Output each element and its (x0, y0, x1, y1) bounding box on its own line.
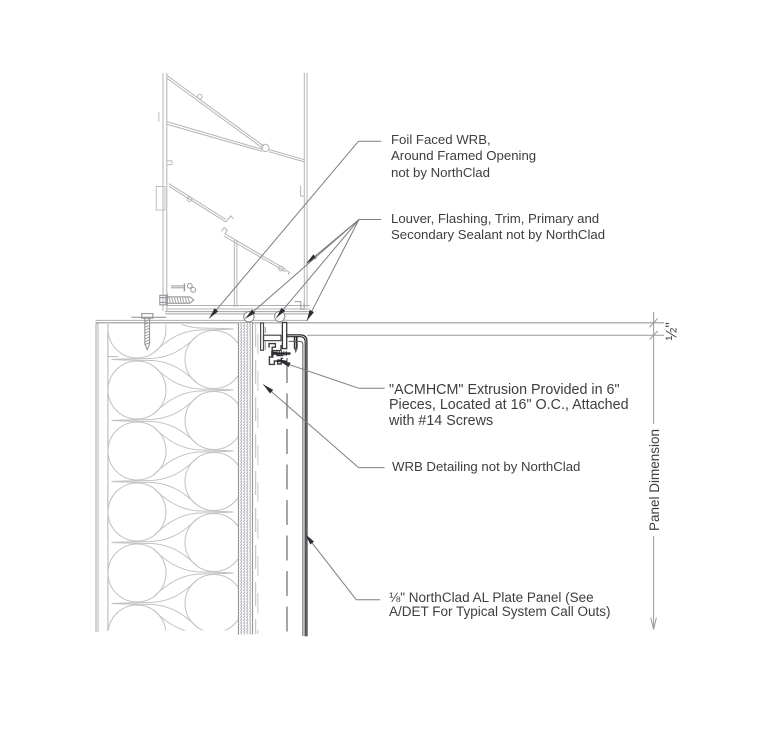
svg-text:Panel Dimension: Panel Dimension (647, 429, 662, 531)
svg-text:½": ½" (664, 322, 681, 340)
